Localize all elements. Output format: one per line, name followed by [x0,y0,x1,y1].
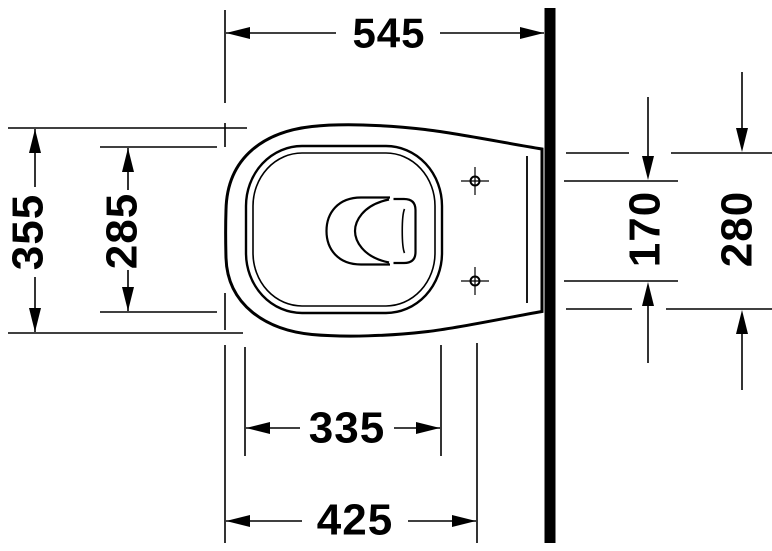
fixing-hole-bottom [461,267,489,295]
dimension-overall-depth: 545 [226,10,544,57]
arrowhead-up [642,282,654,306]
technical-drawing-page: 545 355 285 [0,0,772,551]
dimension-bowl-inner-depth: 335 [245,345,441,456]
arrowhead-right [452,515,476,527]
arrowhead-up [736,310,748,334]
dimension-bowl-inner-width: 285 [98,147,218,312]
sump-inner-edge-line [402,209,404,253]
dim-overall-depth-label: 545 [352,10,425,57]
arrowhead-down [29,308,41,332]
arrowhead-left [226,515,250,527]
sump-right-bracket [394,199,416,263]
sump-inner-curve [355,200,389,263]
arrowhead-right [520,27,544,39]
dim-rear-width-label: 280 [713,191,762,267]
sump-detail [327,198,416,265]
arrowhead-down [642,156,654,180]
arrowhead-right [416,422,440,434]
dim-bowl-inner-depth-label: 335 [309,404,385,453]
sump-outer-curve [327,198,391,265]
fixing-hole-top [461,167,489,195]
dim-fixing-hole-spacing-label: 170 [621,191,670,267]
arrowhead-down [122,287,134,311]
arrowhead-left [226,27,250,39]
wall-section-bar [545,8,556,543]
arrowhead-up [122,148,134,172]
arrowhead-down [736,128,748,152]
bowl-rim-inner-line [253,153,435,306]
arrowhead-left [246,422,270,434]
dimension-fixing-hole-spacing: 170 [564,97,678,363]
arrowhead-up [29,129,41,153]
dim-bowl-inner-width-label: 285 [98,193,147,269]
toilet-body [226,125,542,336]
dim-front-to-fixing-holes-label: 425 [317,496,393,545]
toilet-dimension-drawing: 545 355 285 [0,0,772,551]
dim-overall-width-label: 355 [4,194,53,270]
bowl-rim-outer-line [246,146,442,313]
